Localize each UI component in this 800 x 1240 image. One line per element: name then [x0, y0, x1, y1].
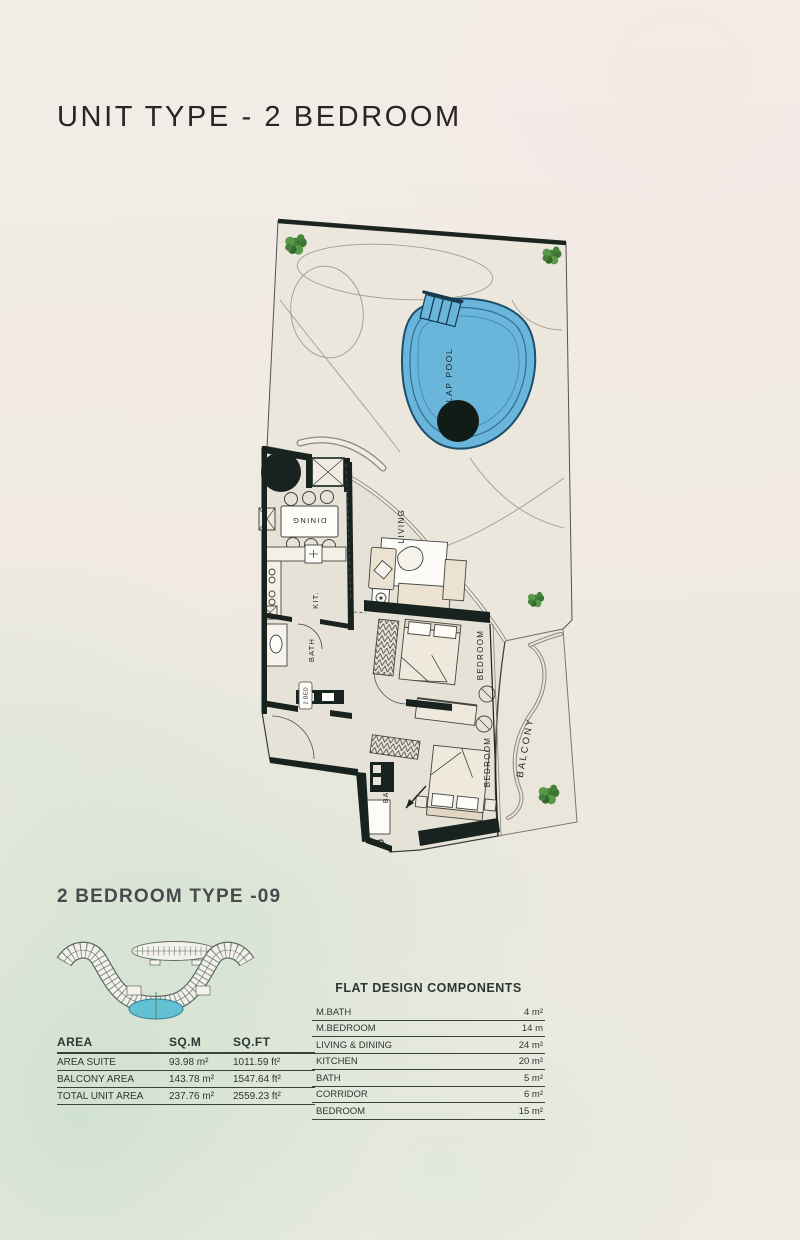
table-row: M.BEDROOM 14 m: [312, 1021, 545, 1038]
col-header-area: AREA: [57, 1035, 169, 1049]
table-row: LIVING & DINING 24 m²: [312, 1037, 545, 1054]
section-title: 2 BEDROOM TYPE -09: [57, 886, 281, 908]
table-row: KITCHEN 20 m²: [312, 1054, 545, 1071]
kitchen-label: KIT.: [311, 591, 320, 609]
table-row: M.BATH 4 m²: [312, 1004, 545, 1021]
bath-label: BATH: [307, 638, 316, 662]
service-shaft: [312, 458, 344, 486]
col-header-sqft: SQ.FT: [233, 1035, 315, 1049]
table-row: BATH 5 m²: [312, 1070, 545, 1087]
living-label: LIVING: [397, 509, 406, 544]
dining-label: DINING: [292, 516, 327, 525]
lap-pool-label: LAP POOL: [444, 348, 454, 403]
unit-tag-label: 2 BED: [304, 687, 310, 704]
bedroom-1-label: BEDROOM: [476, 630, 485, 680]
bedroom-2-label: BEDROOM: [483, 737, 492, 787]
brochure-page: UNIT TYPE - 2 BEDROOM: [0, 0, 800, 1240]
table-row: CORRIDOR 6 m²: [312, 1087, 545, 1104]
table-row: TOTAL UNIT AREA 237.76 m² 2559.23 ft²: [57, 1088, 315, 1105]
structural-column: [261, 452, 301, 492]
area-table-header: AREA SQ.M SQ.FT: [57, 1035, 315, 1054]
components-table-title: FLAT DESIGN COMPONENTS: [312, 981, 545, 995]
bath-2-label: BATH: [383, 781, 390, 803]
pool-column: [437, 400, 479, 442]
area-table: AREA SQ.M SQ.FT AREA SUITE 93.98 m² 1011…: [57, 1035, 315, 1105]
components-table: FLAT DESIGN COMPONENTS M.BATH 4 m² M.BED…: [312, 981, 545, 1120]
col-header-sqm: SQ.M: [169, 1035, 233, 1049]
table-row: BALCONY AREA 143.78 m² 1547.64 ft²: [57, 1071, 315, 1088]
unit-tag: 2 BED: [299, 682, 312, 709]
balcony: BALCONY: [496, 629, 577, 836]
key-plan: [64, 942, 247, 1020]
table-row: AREA SUITE 93.98 m² 1011.59 ft²: [57, 1054, 315, 1071]
table-row: BEDROOM 15 m²: [312, 1103, 545, 1120]
